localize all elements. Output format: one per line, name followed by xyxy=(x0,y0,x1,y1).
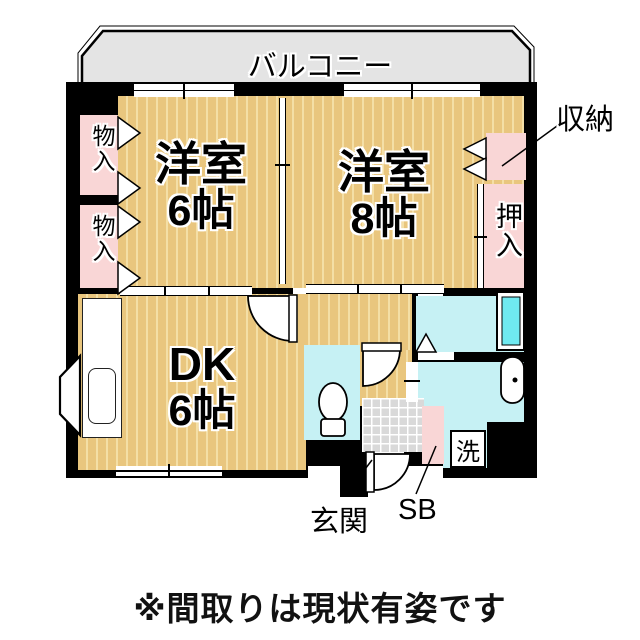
monoire-lower-label: 物入 xyxy=(85,214,119,264)
shunou-leader-line xyxy=(502,126,557,166)
toilet-door-swing xyxy=(363,349,400,386)
laundry-label: 洗 xyxy=(456,432,480,467)
shower-corner-icon xyxy=(416,334,436,352)
shoe-box-label: SB xyxy=(398,494,437,527)
room-size: 8帖 xyxy=(351,197,418,243)
dk-label: DK 6帖 xyxy=(112,342,292,432)
dk-door-swing xyxy=(248,296,293,341)
room-name: DK xyxy=(169,340,235,389)
floor-plan-canvas: 洗 バルコニー 洋室 6帖 洋室 8帖 DK 6帖 物入 物入 収納 押入 玄関… xyxy=(0,0,640,640)
bathtub-inner xyxy=(502,297,520,345)
closet-door-icon xyxy=(118,262,140,294)
disclaimer-note: ※間取りは現状有姿です xyxy=(0,582,640,630)
entrance-door-leaf xyxy=(366,452,374,492)
room-name: 洋室 xyxy=(338,148,430,197)
toilet-icon xyxy=(319,383,347,421)
entrance-door-swing xyxy=(374,454,410,490)
sb-leader-line xyxy=(416,446,436,494)
washbasin-drain xyxy=(513,378,518,383)
bedroom-east-label: 洋室 8帖 xyxy=(296,140,472,250)
toilet-tank-icon xyxy=(321,419,345,436)
room-size: 6帖 xyxy=(169,389,236,435)
toilet-door-leaf xyxy=(362,343,401,351)
laundry-space-box: 洗 xyxy=(450,430,486,468)
fixtures-layer xyxy=(0,0,640,640)
oshiire-label: 押入 xyxy=(488,202,527,260)
room-name: 洋室 xyxy=(155,140,247,189)
dk-door-leaf xyxy=(289,295,297,342)
shunou-label: 収納 xyxy=(556,96,614,138)
room-size: 6帖 xyxy=(168,189,235,235)
bay-window xyxy=(60,356,80,435)
monoire-upper-label: 物入 xyxy=(85,124,119,174)
bedroom-west-label: 洋室 6帖 xyxy=(118,132,284,242)
balcony-label: バルコニー xyxy=(240,43,400,85)
entrance-label: 玄関 xyxy=(310,498,368,540)
